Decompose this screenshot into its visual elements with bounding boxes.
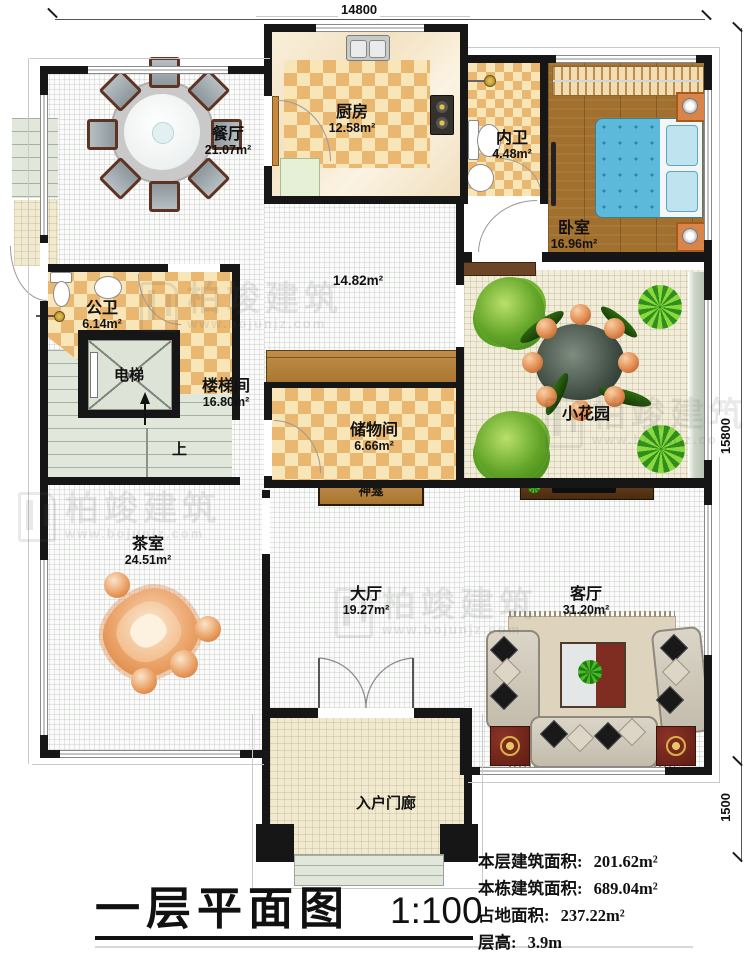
stat-value: 201.62m² bbox=[594, 852, 658, 871]
room-name: 电梯 bbox=[114, 364, 144, 385]
room-name: 厨房 bbox=[329, 104, 376, 122]
room-label-public-bath: 公卫 6.14m² bbox=[82, 300, 122, 331]
stats-block: 本层建筑面积: 201.62m² 本栋建筑面积: 689.04m² 占地面积: … bbox=[478, 848, 658, 956]
towel-ring bbox=[484, 75, 496, 87]
scale-text: 1:100 bbox=[390, 890, 483, 931]
room-area: 4.48m² bbox=[492, 148, 532, 162]
bath-sink bbox=[467, 164, 494, 192]
dim-top-label: 14800 bbox=[338, 2, 380, 17]
bedroom-door-gap bbox=[472, 252, 542, 262]
stat-label: 层高: bbox=[478, 933, 517, 952]
room-label-dining: 餐厅 21.07m² bbox=[205, 126, 252, 157]
stair-divider bbox=[146, 428, 148, 478]
wall bbox=[460, 63, 468, 204]
room-name: 内卫 bbox=[492, 130, 532, 148]
watermark-text: 柏竣建筑 bbox=[382, 588, 538, 622]
garden-fruit bbox=[570, 304, 591, 325]
stat-row: 占地面积: 237.22m² bbox=[478, 902, 658, 929]
room-name: 小花园 bbox=[562, 406, 610, 424]
tea-stool bbox=[195, 616, 221, 642]
room-label-porch: 入户门廊 bbox=[356, 796, 416, 813]
wall bbox=[264, 196, 468, 204]
wall bbox=[264, 382, 464, 388]
toilet-bowl bbox=[53, 281, 70, 307]
hall-cabinet bbox=[266, 350, 460, 386]
window bbox=[60, 750, 240, 758]
room-label-garden: 小花园 bbox=[562, 406, 610, 424]
room-name: 餐厅 bbox=[205, 126, 252, 144]
nightstand bbox=[676, 222, 706, 252]
garden-fruit bbox=[618, 352, 639, 373]
dim-tick bbox=[47, 8, 58, 19]
room-label-tea: 茶室 24.51m² bbox=[125, 536, 172, 567]
title-text: 一层平面图 bbox=[95, 883, 350, 934]
room-area: 6.66m² bbox=[350, 440, 398, 454]
plan-scale: 1:100 bbox=[390, 892, 483, 929]
tea-hall-opening bbox=[262, 498, 270, 554]
room-label-inner-bath: 内卫 4.48m² bbox=[492, 130, 532, 161]
garden-fruit bbox=[536, 318, 557, 339]
room-label-living: 客厅 31.20m² bbox=[563, 586, 610, 617]
roof-line bbox=[468, 782, 720, 783]
room-label-stairwell: 楼梯间 16.80m² bbox=[202, 378, 250, 409]
wall bbox=[456, 478, 712, 488]
room-label-great-hall: 大厅 19.27m² bbox=[343, 586, 390, 617]
garden-fruit bbox=[522, 352, 543, 373]
porch-column bbox=[440, 824, 478, 862]
corridor-area-label: 14.82m² bbox=[333, 274, 383, 289]
stat-label: 本栋建筑面积: bbox=[478, 879, 583, 898]
dining-chair bbox=[87, 119, 118, 150]
storage-door-gap bbox=[264, 420, 272, 476]
dim-tick bbox=[732, 22, 743, 33]
wall bbox=[262, 708, 320, 718]
room-label-kitchen: 厨房 12.58m² bbox=[329, 104, 376, 135]
dim-right-label: 15800 bbox=[718, 415, 733, 457]
stairs-up-label: 上 bbox=[172, 438, 187, 459]
watermark-text: 柏竣建筑 bbox=[187, 282, 343, 316]
tea-stool bbox=[170, 650, 198, 678]
room-area: 14.82m² bbox=[333, 274, 383, 289]
room-name: 茶室 bbox=[125, 536, 172, 554]
front-double-door bbox=[316, 656, 416, 710]
bed-pillow bbox=[666, 125, 698, 166]
porch-steps bbox=[294, 854, 444, 886]
kitchen-door-gap bbox=[264, 96, 272, 166]
room-area: 16.80m² bbox=[202, 396, 250, 410]
public-bath-door-gap bbox=[168, 264, 220, 272]
nightstand bbox=[676, 92, 706, 122]
dim-line-right bbox=[741, 28, 742, 862]
garden-bench bbox=[462, 262, 536, 276]
stat-value: 689.04m² bbox=[594, 879, 658, 898]
window bbox=[480, 767, 665, 775]
bed bbox=[595, 118, 703, 218]
room-area: 31.20m² bbox=[563, 604, 610, 618]
wall bbox=[540, 63, 548, 204]
stat-row: 本层建筑面积: 201.62m² bbox=[478, 848, 658, 875]
wall bbox=[264, 480, 464, 488]
room-area: 19.27m² bbox=[343, 604, 390, 618]
room-name: 储物间 bbox=[350, 422, 398, 440]
dining-chair bbox=[149, 181, 180, 212]
bedroom-door-arc bbox=[478, 200, 537, 253]
window bbox=[556, 55, 696, 63]
plan-title: 一层平面图 bbox=[95, 886, 350, 931]
grab-knob bbox=[54, 311, 65, 322]
room-name: 卧室 bbox=[551, 220, 598, 238]
room-area: 16.96m² bbox=[551, 238, 598, 252]
room-name: 入户门廊 bbox=[356, 796, 416, 813]
room-name: 客厅 bbox=[563, 586, 610, 604]
stat-row: 层高: 3.9m bbox=[478, 929, 658, 956]
stat-label: 本层建筑面积: bbox=[478, 852, 583, 871]
room-area: 12.58m² bbox=[329, 122, 376, 136]
wall bbox=[40, 477, 240, 485]
garden-palm bbox=[638, 285, 682, 329]
window bbox=[704, 505, 712, 655]
roof-line bbox=[468, 47, 720, 48]
room-label-bedroom: 卧室 16.96m² bbox=[551, 220, 598, 251]
bath-sink bbox=[94, 276, 122, 299]
roof-line bbox=[30, 58, 270, 59]
window bbox=[40, 95, 48, 235]
dining-table-center bbox=[152, 122, 174, 144]
stat-value: 237.22m² bbox=[561, 906, 625, 925]
dim-bottom-right-label: 1500 bbox=[718, 790, 733, 825]
watermark: 柏竣建筑 www.bojunjz.com bbox=[140, 282, 343, 333]
room-area: 21.07m² bbox=[205, 144, 252, 158]
watermark-text: 柏竣建筑 bbox=[65, 492, 221, 526]
garden-fruit bbox=[604, 318, 625, 339]
window bbox=[88, 66, 228, 74]
watermark-logo bbox=[140, 282, 178, 332]
window bbox=[704, 90, 712, 240]
wall bbox=[262, 718, 270, 830]
porch-column bbox=[256, 824, 294, 862]
room-name: 楼梯间 bbox=[202, 378, 250, 396]
kitchen-cabinet bbox=[280, 158, 320, 198]
stat-row: 本栋建筑面积: 689.04m² bbox=[478, 875, 658, 902]
room-name: 公卫 bbox=[82, 300, 122, 318]
garden-tree bbox=[475, 411, 549, 483]
stat-label: 占地面积: bbox=[478, 906, 550, 925]
dim-line-top bbox=[55, 19, 705, 20]
up-text: 上 bbox=[172, 441, 187, 458]
tea-stool bbox=[131, 668, 157, 694]
watermark: 柏竣建筑 www.bojunjz.com bbox=[18, 492, 221, 543]
room-name: 大厅 bbox=[343, 586, 390, 604]
room-area: 24.51m² bbox=[125, 554, 172, 568]
corner-mat bbox=[490, 726, 530, 766]
wall bbox=[460, 708, 468, 775]
corner-mat bbox=[656, 726, 696, 766]
tea-stool bbox=[104, 572, 130, 598]
room-label-storage: 储物间 6.66m² bbox=[350, 422, 398, 453]
bedroom-tv bbox=[551, 142, 556, 206]
room-label-elevator: 电梯 bbox=[88, 340, 170, 408]
porch-floor bbox=[270, 718, 464, 856]
title-underline bbox=[95, 936, 473, 940]
floor-plan-page: 神龛 bbox=[0, 0, 750, 958]
stat-value: 3.9m bbox=[528, 933, 562, 952]
table-plant bbox=[578, 660, 602, 684]
roof-line bbox=[28, 58, 29, 764]
roof-line bbox=[32, 764, 264, 765]
watermark-url: www.bojunjz.com bbox=[382, 622, 538, 639]
bed-pillow bbox=[666, 171, 698, 212]
roof-line bbox=[252, 714, 253, 888]
window bbox=[40, 560, 48, 735]
watermark-logo bbox=[18, 492, 56, 542]
kitchen-sink bbox=[346, 35, 390, 61]
kitchen-stove bbox=[430, 95, 454, 135]
watermark-url: www.bojunjz.com bbox=[187, 316, 343, 333]
garden-opening bbox=[456, 285, 464, 347]
window bbox=[316, 24, 424, 32]
exterior-side-steps bbox=[12, 118, 58, 198]
room-area: 6.14m² bbox=[82, 318, 122, 332]
